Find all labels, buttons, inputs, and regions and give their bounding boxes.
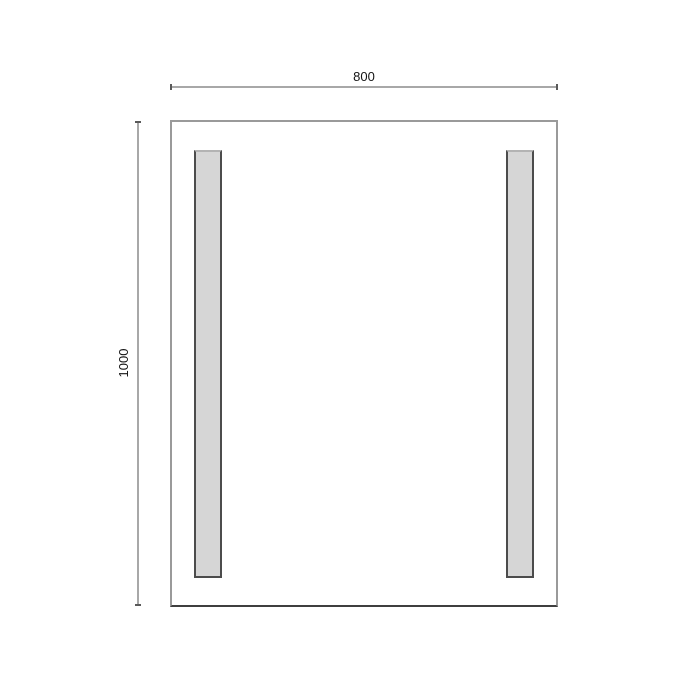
led-strip-right bbox=[506, 150, 534, 578]
led-strip-left bbox=[194, 150, 222, 578]
height-dimension-tick-bottom bbox=[135, 604, 141, 606]
width-dimension-tick-right bbox=[556, 84, 558, 90]
dimension-diagram: 800 1000 bbox=[0, 0, 700, 700]
width-dimension-tick-left bbox=[170, 84, 172, 90]
height-dimension-line bbox=[137, 121, 139, 606]
height-dimension-tick-top bbox=[135, 121, 141, 123]
width-dimension-label: 800 bbox=[170, 70, 558, 84]
width-dimension-line bbox=[170, 86, 558, 88]
mirror-outline bbox=[170, 120, 558, 607]
height-dimension-label: 1000 bbox=[117, 335, 131, 391]
